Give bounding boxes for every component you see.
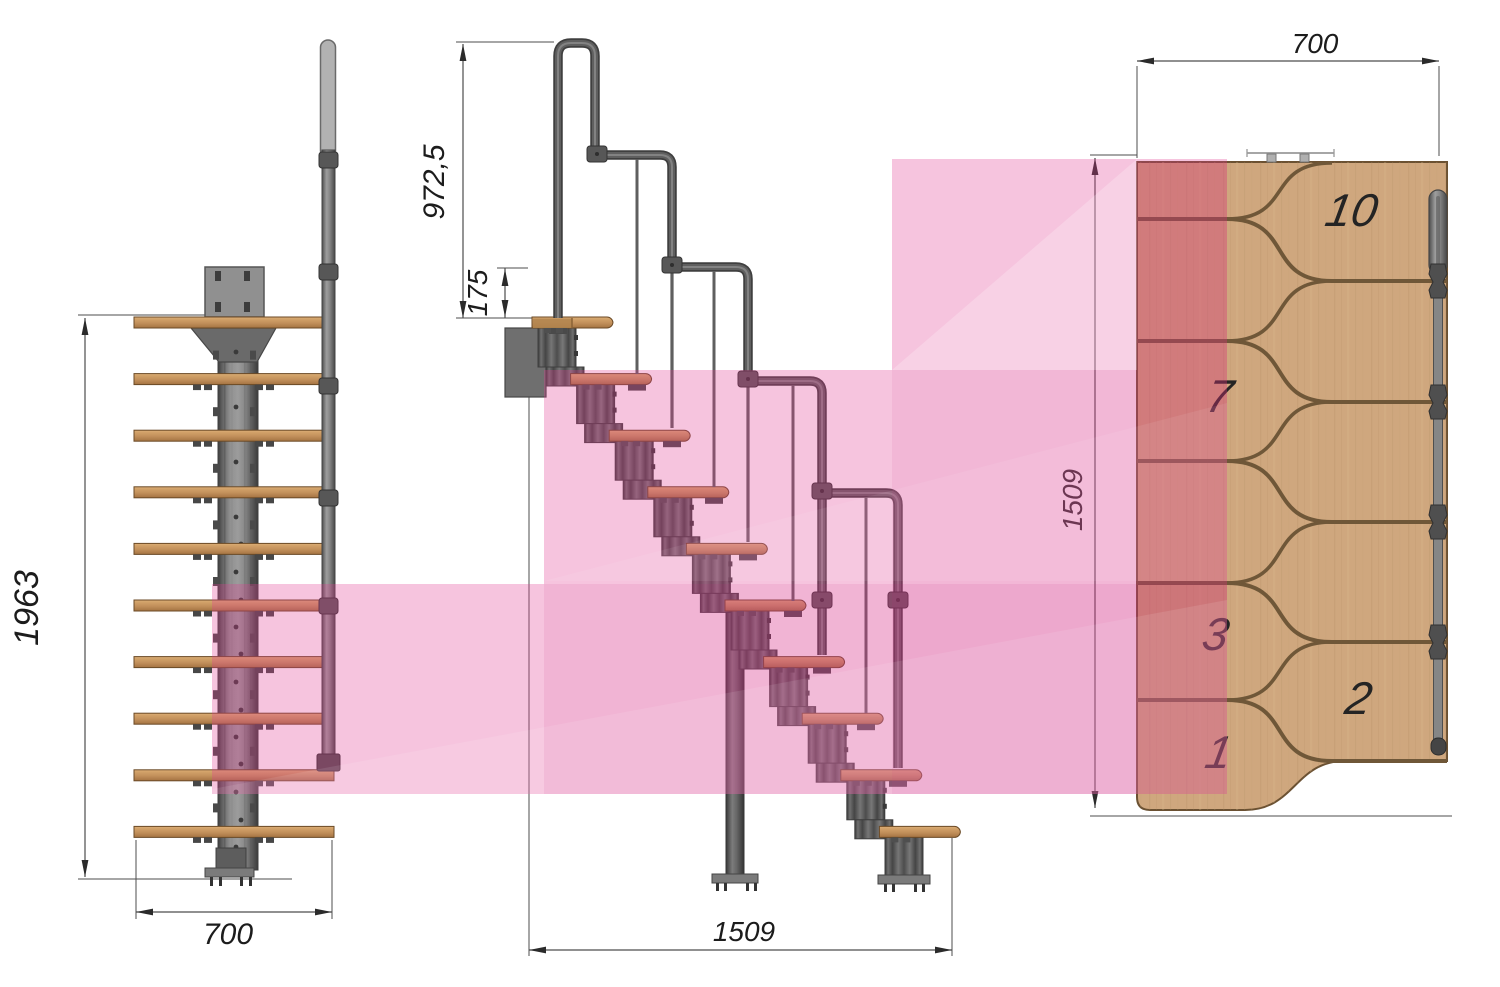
svg-text:175: 175 xyxy=(462,269,493,316)
svg-text:700: 700 xyxy=(1292,28,1339,59)
svg-text:972,5: 972,5 xyxy=(418,144,451,219)
svg-text:700: 700 xyxy=(203,918,253,951)
svg-text:10: 10 xyxy=(1322,184,1382,236)
svg-text:1963: 1963 xyxy=(8,570,46,646)
svg-text:1509: 1509 xyxy=(713,916,775,947)
